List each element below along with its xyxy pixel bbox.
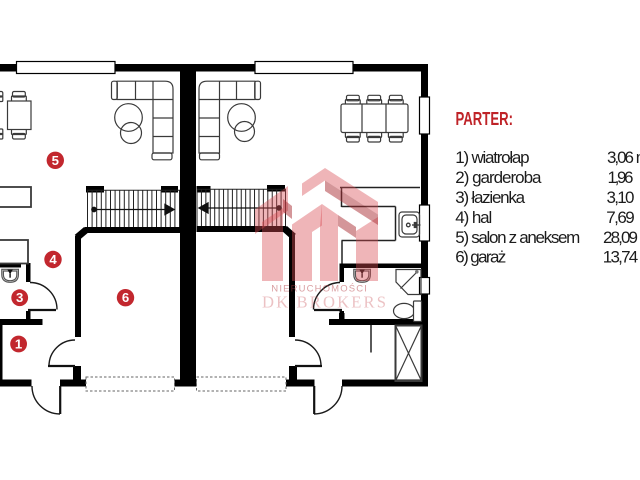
svg-text:4: 4 — [49, 252, 57, 267]
svg-text:2) garderoba: 2) garderoba — [455, 168, 542, 187]
svg-text:4) hal: 4) hal — [455, 208, 492, 227]
svg-text:5: 5 — [52, 153, 59, 168]
svg-text:6: 6 — [122, 290, 129, 305]
svg-text:6) garaż: 6) garaż — [455, 247, 506, 266]
svg-text:1: 1 — [15, 337, 22, 352]
svg-text:13,74: 13,74 — [603, 247, 639, 266]
svg-text:5) salon z aneksem: 5) salon z aneksem — [455, 228, 580, 247]
svg-text:3,10: 3,10 — [607, 188, 635, 207]
svg-text:7,69: 7,69 — [606, 208, 635, 227]
svg-text:3: 3 — [16, 290, 23, 305]
svg-text:28,09: 28,09 — [603, 228, 638, 247]
svg-text:m: m — [636, 148, 640, 167]
svg-text:PARTER:: PARTER: — [456, 109, 514, 129]
svg-text:1) wiatrołap: 1) wiatrołap — [455, 148, 529, 167]
svg-text:DK BROKERS: DK BROKERS — [262, 293, 386, 312]
svg-text:3) łazienka: 3) łazienka — [455, 188, 525, 207]
svg-text:3,06: 3,06 — [607, 148, 634, 167]
svg-text:1,96: 1,96 — [608, 168, 634, 187]
